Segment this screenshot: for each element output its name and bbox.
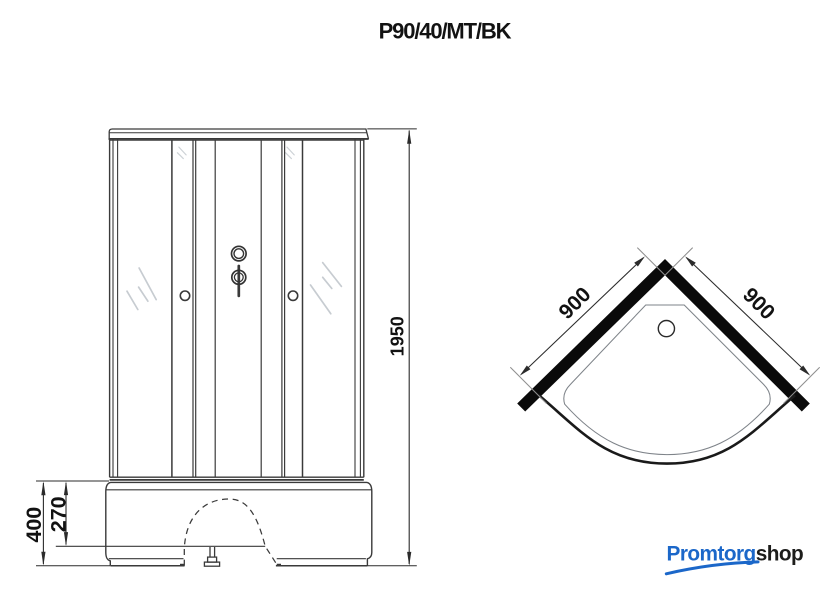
svg-text:400: 400 [22,507,46,543]
svg-text:1950: 1950 [387,316,407,356]
svg-text:P90/40/MT/BK: P90/40/MT/BK [379,19,512,44]
svg-text:270: 270 [47,496,71,532]
